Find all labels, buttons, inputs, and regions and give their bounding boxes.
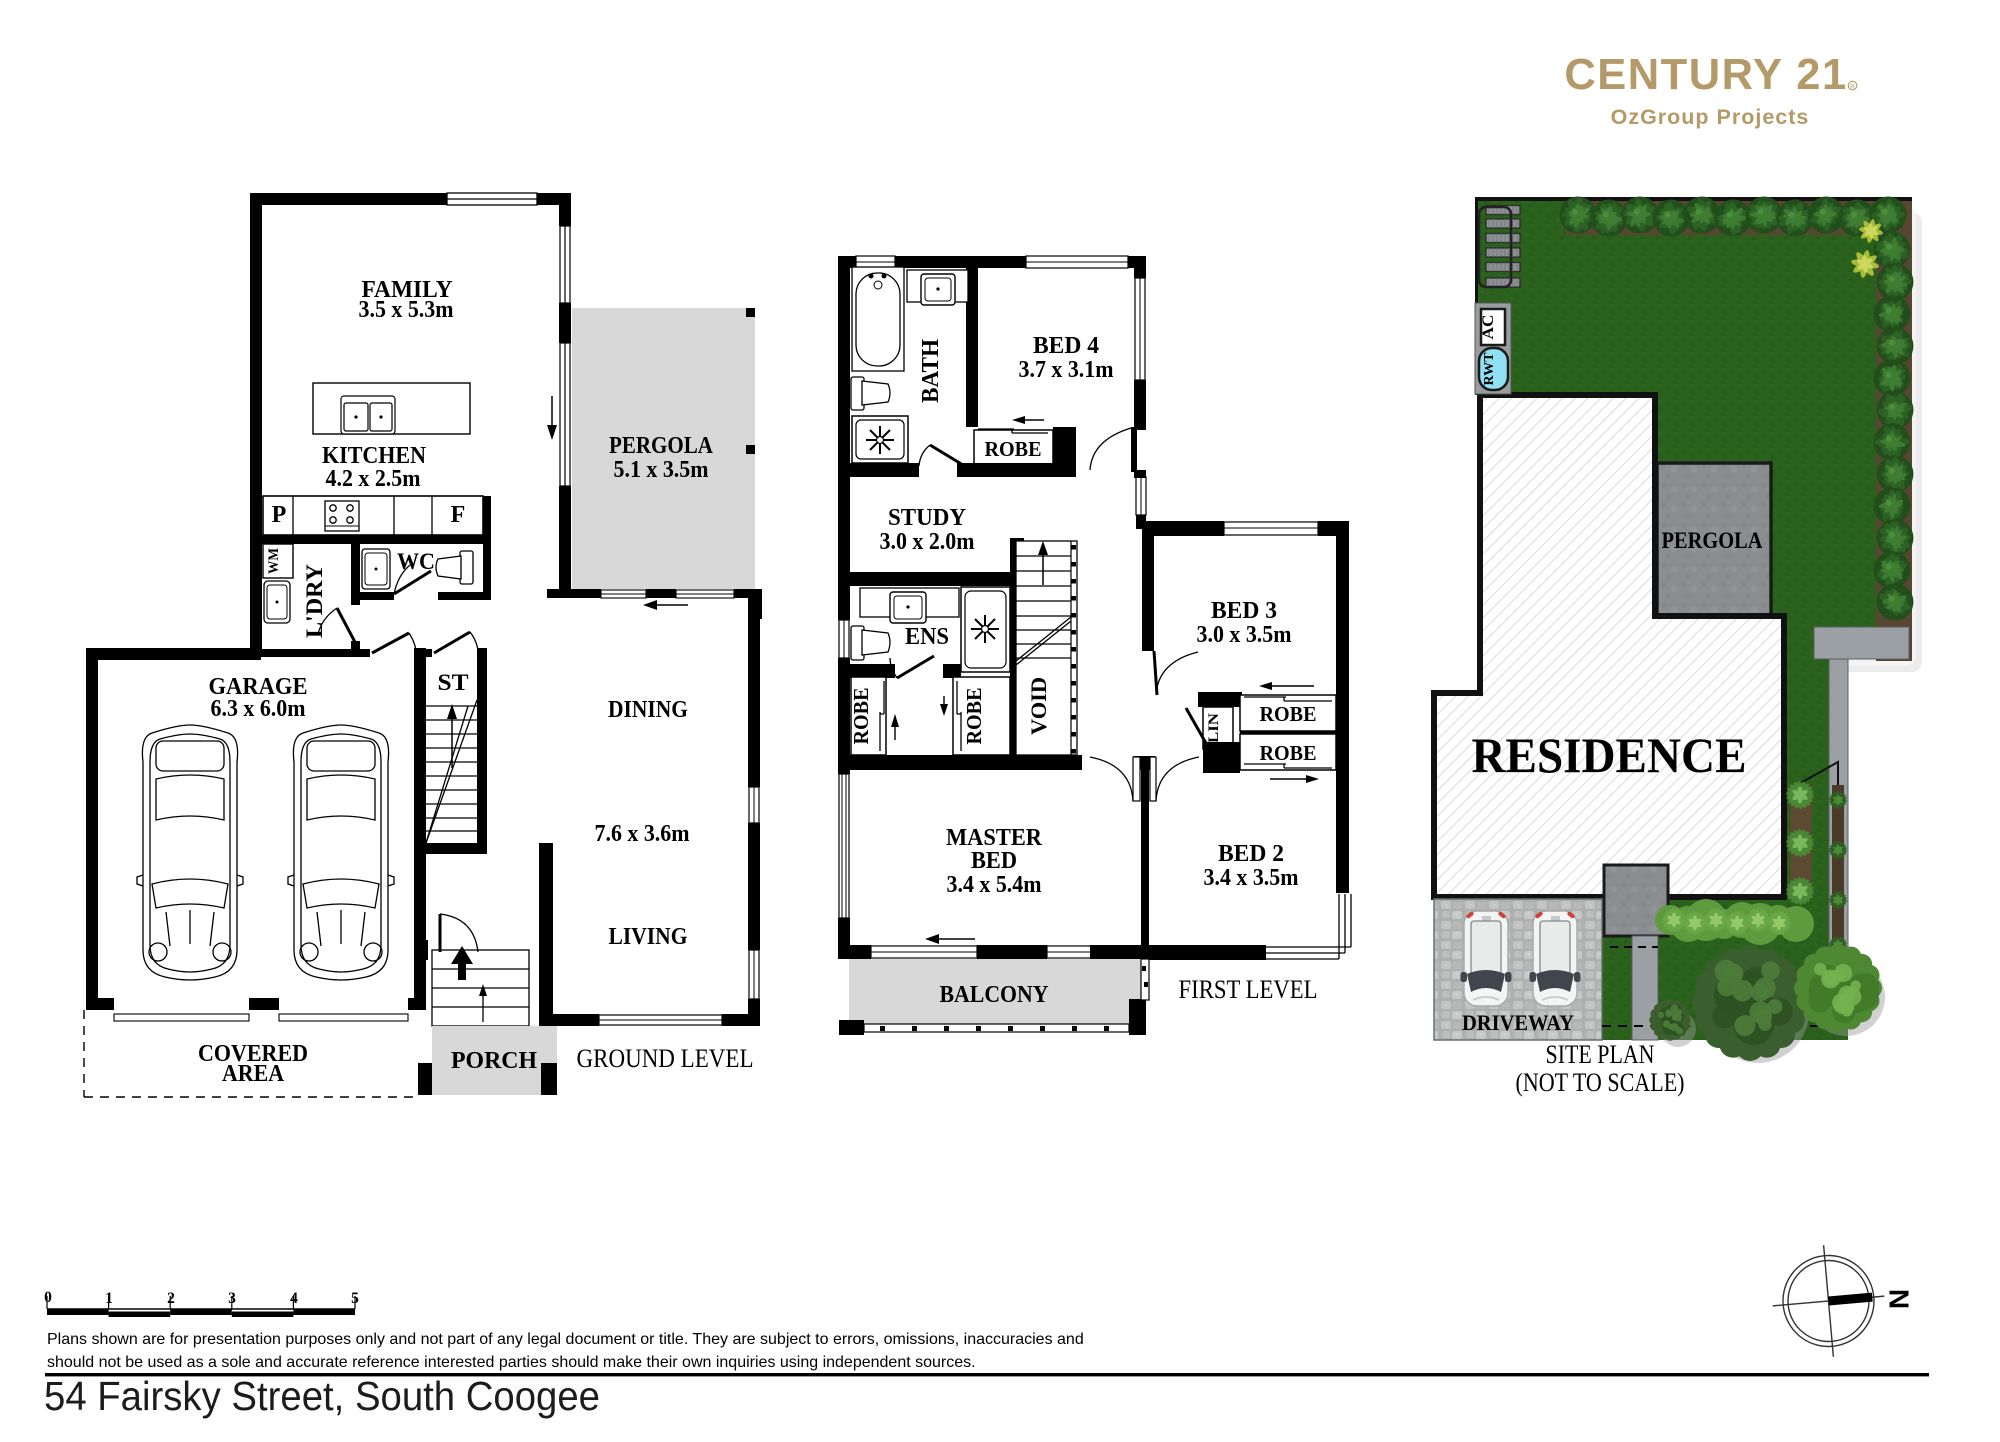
svg-text:AC: AC: [1480, 315, 1497, 340]
svg-text:CENTURY 21: CENTURY 21: [1564, 51, 1847, 99]
svg-text:BED 3: BED 3: [1211, 598, 1277, 624]
svg-text:ROBE: ROBE: [849, 688, 873, 745]
svg-text:BED: BED: [971, 848, 1017, 874]
svg-text:BALCONY: BALCONY: [940, 982, 1049, 1008]
svg-text:STUDY: STUDY: [888, 505, 966, 531]
svg-text:Plans shown are for presentati: Plans shown are for presentation purpose…: [47, 1331, 1084, 1348]
svg-text:ROBE: ROBE: [1260, 741, 1317, 765]
svg-text:54 Fairsky Street, South Cooge: 54 Fairsky Street, South Coogee: [44, 1373, 600, 1419]
svg-text:SITE PLAN: SITE PLAN: [1546, 1040, 1655, 1069]
svg-text:ROBE: ROBE: [962, 688, 986, 745]
svg-text:BED 4: BED 4: [1033, 333, 1099, 359]
svg-text:BED 2: BED 2: [1218, 841, 1284, 867]
svg-text:3.5 x 5.3m: 3.5 x 5.3m: [359, 297, 454, 323]
svg-text:7.6 x 3.6m: 7.6 x 3.6m: [595, 821, 690, 847]
svg-text:4.2 x 2.5m: 4.2 x 2.5m: [326, 466, 421, 492]
svg-text:PERGOLA: PERGOLA: [609, 433, 714, 459]
svg-text:N: N: [1884, 1289, 1915, 1309]
svg-text:LIN: LIN: [1206, 713, 1222, 743]
svg-text:WC: WC: [397, 549, 435, 574]
svg-text:WM: WM: [266, 548, 282, 574]
svg-text:VOID: VOID: [1026, 677, 1051, 735]
svg-text:PORCH: PORCH: [451, 1048, 537, 1074]
svg-text:(NOT TO SCALE): (NOT TO SCALE): [1516, 1068, 1685, 1097]
svg-text:RESIDENCE: RESIDENCE: [1472, 727, 1747, 783]
svg-text:6.3 x 6.0m: 6.3 x 6.0m: [211, 696, 306, 722]
svg-text:F: F: [451, 502, 466, 528]
svg-text:DRIVEWAY: DRIVEWAY: [1462, 1010, 1574, 1035]
svg-text:RWT: RWT: [1482, 352, 1497, 386]
svg-text:R: R: [1850, 83, 1855, 90]
svg-text:ROBE: ROBE: [1260, 702, 1317, 726]
svg-text:3.4 x 3.5m: 3.4 x 3.5m: [1204, 865, 1299, 891]
svg-text:0: 0: [44, 1289, 52, 1306]
svg-text:AREA: AREA: [222, 1061, 285, 1087]
svg-text:3.7 x 3.1m: 3.7 x 3.1m: [1019, 357, 1114, 383]
svg-text:3.0 x 3.5m: 3.0 x 3.5m: [1197, 622, 1292, 648]
svg-text:PERGOLA: PERGOLA: [1662, 528, 1763, 553]
svg-text:BATH: BATH: [918, 339, 944, 403]
svg-text:P: P: [272, 502, 287, 528]
svg-text:4: 4: [290, 1290, 298, 1307]
svg-text:GROUND LEVEL: GROUND LEVEL: [577, 1044, 754, 1073]
svg-text:ENS: ENS: [905, 624, 949, 650]
svg-text:FIRST LEVEL: FIRST LEVEL: [1179, 975, 1318, 1004]
svg-text:L'DRY: L'DRY: [302, 564, 327, 638]
svg-text:LIVING: LIVING: [609, 924, 688, 950]
svg-text:ROBE: ROBE: [985, 437, 1042, 461]
svg-text:should not be used as a sole a: should not be used as a sole and accurat…: [47, 1354, 976, 1371]
svg-text:DINING: DINING: [608, 697, 688, 723]
svg-text:ST: ST: [438, 670, 469, 695]
svg-text:5.1 x 3.5m: 5.1 x 3.5m: [614, 457, 709, 483]
svg-text:3.4 x 5.4m: 3.4 x 5.4m: [947, 872, 1042, 898]
svg-text:OzGroup Projects: OzGroup Projects: [1611, 105, 1810, 129]
svg-text:3.0 x 2.0m: 3.0 x 2.0m: [880, 529, 975, 555]
svg-text:2: 2: [167, 1290, 175, 1307]
